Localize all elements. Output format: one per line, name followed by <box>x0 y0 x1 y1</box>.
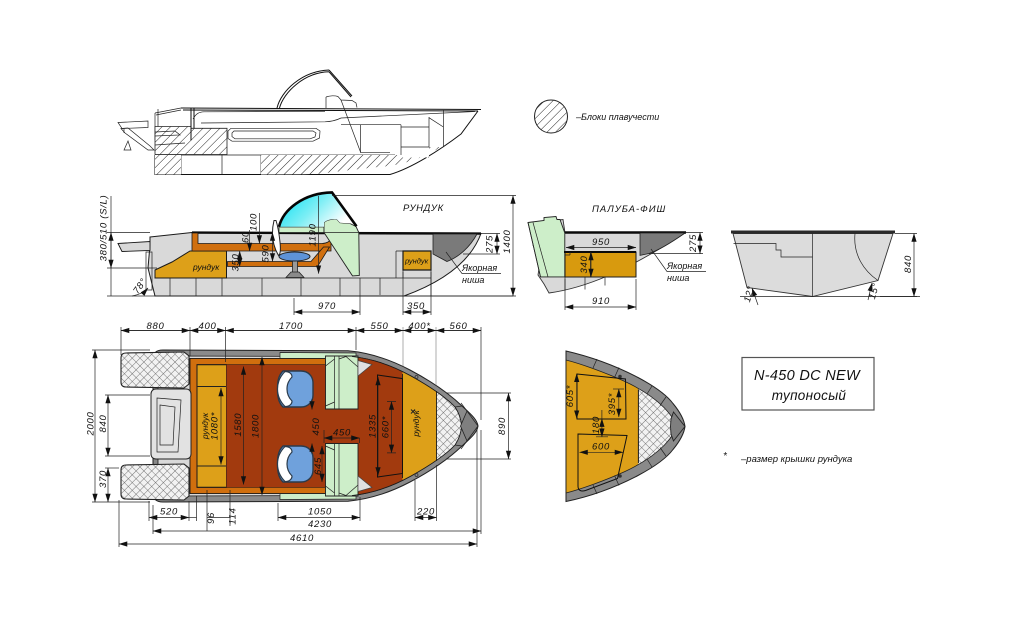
svg-text:1335: 1335 <box>368 414 379 438</box>
svg-text:рундук: рундук <box>404 257 429 266</box>
svg-text:114: 114 <box>228 507 239 524</box>
svg-text:ниша: ниша <box>667 273 689 283</box>
svg-text:840: 840 <box>98 415 109 433</box>
svg-text:1190: 1190 <box>308 223 319 246</box>
svg-text:N-450 DC NEW: N-450 DC NEW <box>754 368 861 384</box>
svg-text:ниша: ниша <box>462 275 484 285</box>
svg-text:Якорная: Якорная <box>666 261 702 271</box>
svg-text:рундук: рундук <box>200 412 210 440</box>
svg-text:96: 96 <box>206 512 217 524</box>
svg-text:645: 645 <box>313 457 324 475</box>
svg-text:660*: 660* <box>381 416 392 438</box>
svg-text:–размер крышки рундука: –размер крышки рундука <box>740 454 852 465</box>
svg-text:605*: 605* <box>565 385 576 407</box>
svg-text:275: 275 <box>688 234 699 253</box>
svg-text:600: 600 <box>592 442 610 453</box>
svg-text:840: 840 <box>903 255 914 273</box>
svg-text:400*: 400* <box>408 321 430 332</box>
svg-text:1050: 1050 <box>308 507 332 518</box>
svg-text:–Блоки плавучести: –Блоки плавучести <box>575 112 659 122</box>
svg-text:970: 970 <box>318 301 336 312</box>
svg-text:890: 890 <box>497 417 508 435</box>
svg-text:1580: 1580 <box>233 413 244 437</box>
svg-text:100: 100 <box>249 213 260 231</box>
svg-text:350: 350 <box>407 301 425 312</box>
svg-text:рундук: рундук <box>411 409 421 437</box>
svg-text:1800: 1800 <box>251 414 262 438</box>
svg-text:275: 275 <box>485 235 496 254</box>
svg-text:180: 180 <box>591 416 602 434</box>
svg-text:Якорная: Якорная <box>461 263 497 273</box>
svg-text:550: 550 <box>371 321 389 332</box>
svg-text:рундук: рундук <box>192 262 220 272</box>
svg-text:тупоносый: тупоносый <box>772 388 847 403</box>
svg-text:910: 910 <box>592 296 610 307</box>
svg-text:ПАЛУБА-ФИШ: ПАЛУБА-ФИШ <box>592 204 666 215</box>
svg-text:4230: 4230 <box>308 519 332 530</box>
svg-text:1700: 1700 <box>279 321 303 332</box>
svg-text:РУНДУК: РУНДУК <box>403 203 445 214</box>
svg-text:880: 880 <box>147 321 165 332</box>
svg-text:1080*: 1080* <box>210 412 221 440</box>
svg-text:2000: 2000 <box>86 412 97 437</box>
svg-text:340: 340 <box>579 256 590 274</box>
svg-text:380/510 (S/L): 380/510 (S/L) <box>99 195 110 262</box>
svg-text:520: 520 <box>160 507 178 518</box>
svg-text:370: 370 <box>98 470 109 488</box>
svg-text:1400: 1400 <box>502 230 513 254</box>
svg-text:560: 560 <box>450 321 468 332</box>
svg-text:4610: 4610 <box>290 533 314 544</box>
svg-text:450: 450 <box>311 418 322 436</box>
svg-text:450: 450 <box>333 428 351 439</box>
svg-text:395*: 395* <box>607 393 618 415</box>
svg-text:220: 220 <box>416 507 435 518</box>
svg-text:400: 400 <box>199 321 217 332</box>
svg-text:950: 950 <box>592 237 610 248</box>
svg-text:590: 590 <box>261 245 272 263</box>
